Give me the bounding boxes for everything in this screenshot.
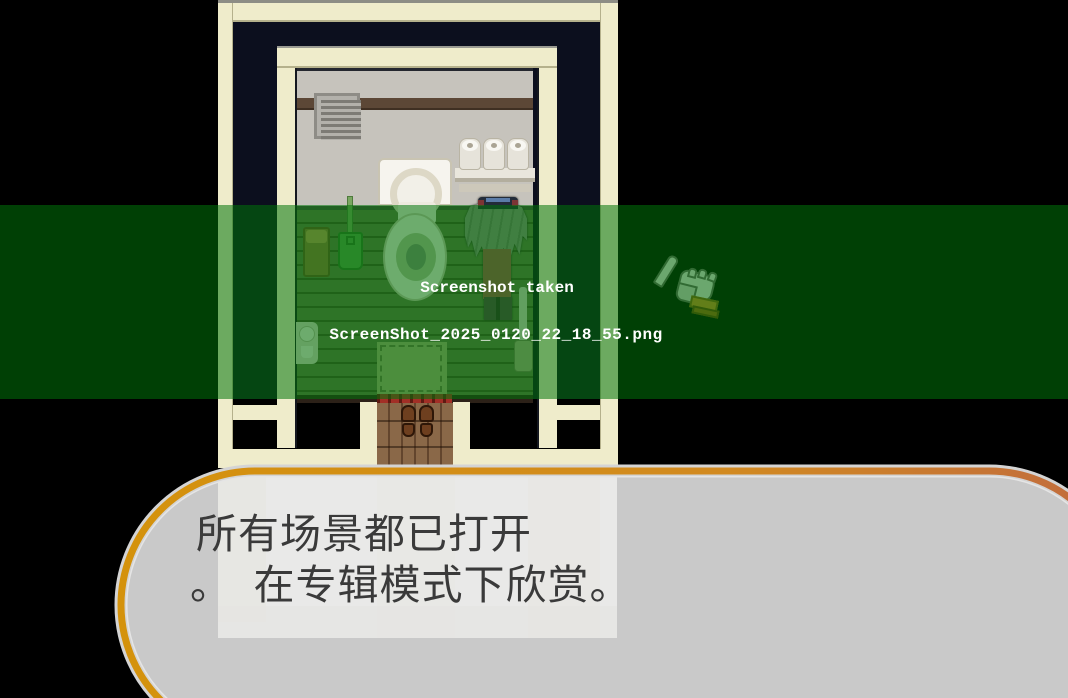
screenshot-banner <box>0 205 1068 399</box>
wall-shelf <box>455 168 535 182</box>
toilet-tank <box>378 158 452 206</box>
dialogue-text-line2: 。 在专辑模式下欣赏。 <box>190 551 632 611</box>
south-wall-segment <box>218 449 360 467</box>
entry-wood-floor <box>377 403 453 476</box>
wall-shelf-bracket <box>459 184 531 192</box>
door-frame-right <box>453 402 470 467</box>
message-window[interactable]: 所有场景都已打开 。 在专辑模式下欣赏。 <box>121 471 1068 698</box>
slipper <box>401 405 417 438</box>
game-screen: Screenshot taken ScreenShot_2025_0120_22… <box>0 0 1068 698</box>
outer-room-top-wall <box>218 0 618 22</box>
screenshot-taken-label: Screenshot taken <box>420 279 574 297</box>
south-wall-segment <box>233 405 277 420</box>
bathroom-top-wall <box>277 46 557 68</box>
south-wall-segment <box>470 449 613 467</box>
door-frame-left <box>360 402 377 467</box>
toilet-paper-roll <box>507 138 529 170</box>
vent-grate-icon <box>314 93 360 139</box>
slipper <box>419 405 435 438</box>
screenshot-filename-label: ScreenShot_2025_0120_22_18_55.png <box>329 326 662 344</box>
toilet-paper-roll <box>459 138 481 170</box>
south-wall-segment <box>557 405 600 420</box>
toilet-paper-roll <box>483 138 505 170</box>
